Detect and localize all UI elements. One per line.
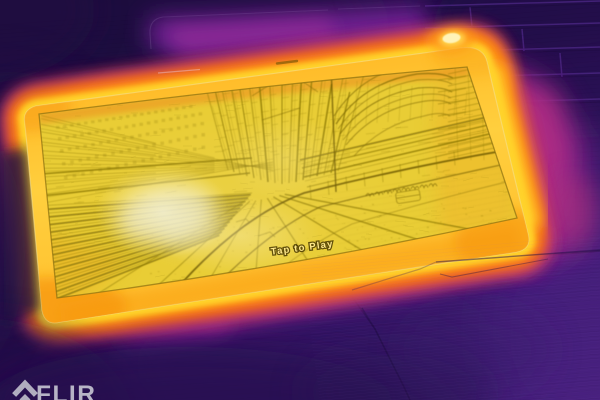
- svg-text:FLIR: FLIR: [36, 381, 96, 400]
